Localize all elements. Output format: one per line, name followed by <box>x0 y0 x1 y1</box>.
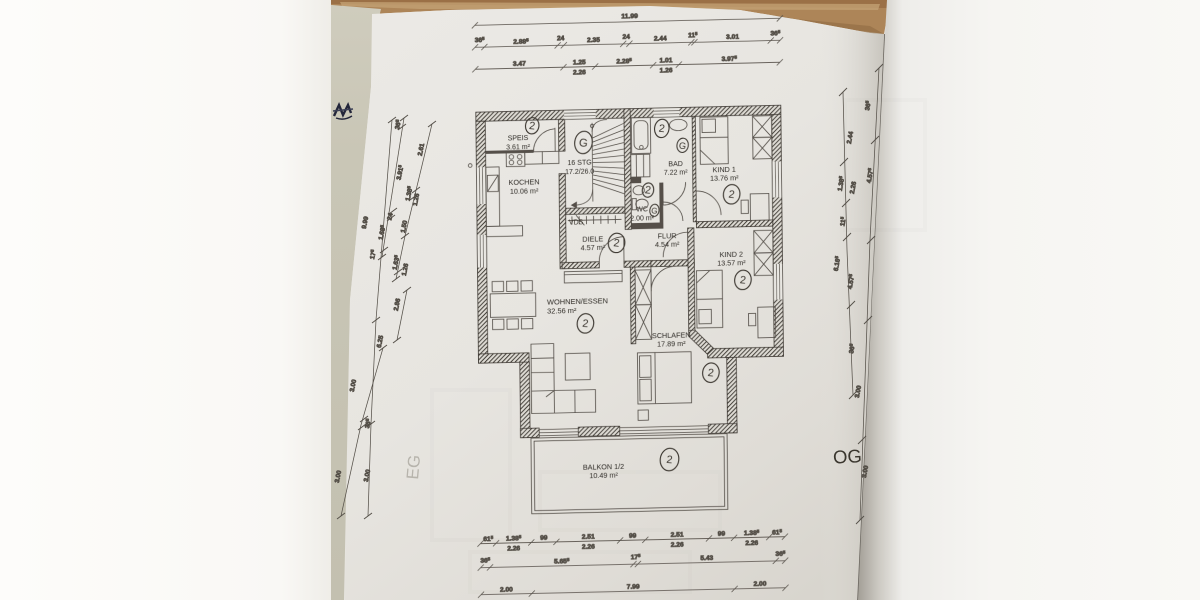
svg-text:G: G <box>578 137 588 150</box>
svg-text:EG: EG <box>403 454 424 480</box>
svg-text:13.76 m²: 13.76 m² <box>710 173 739 183</box>
svg-text:16 STG: 16 STG <box>567 160 591 168</box>
svg-text:2.00: 2.00 <box>754 581 767 588</box>
svg-text:VDS: VDS <box>569 219 584 226</box>
svg-text:1.01: 1.01 <box>660 57 673 64</box>
svg-text:3.61 m²: 3.61 m² <box>506 144 530 152</box>
svg-text:4.54 m²: 4.54 m² <box>655 240 680 250</box>
svg-text:3.01: 3.01 <box>726 34 739 41</box>
svg-text:2.26: 2.26 <box>671 542 684 549</box>
svg-text:5.43: 5.43 <box>700 555 713 562</box>
svg-text:11.99: 11.99 <box>621 13 638 20</box>
svg-text:99: 99 <box>540 535 548 542</box>
svg-text:99: 99 <box>629 533 637 540</box>
svg-text:2.44: 2.44 <box>654 35 667 42</box>
svg-text:2.00: 2.00 <box>500 586 513 593</box>
svg-text:2.26: 2.26 <box>582 544 595 551</box>
svg-text:1.25: 1.25 <box>573 59 586 66</box>
svg-text:BAD: BAD <box>668 161 682 168</box>
svg-text:G: G <box>678 141 686 152</box>
svg-text:99: 99 <box>718 530 726 537</box>
svg-text:17.2/26.0: 17.2/26.0 <box>565 168 594 176</box>
svg-text:2.35: 2.35 <box>587 37 600 44</box>
svg-text:17.89 m²: 17.89 m² <box>657 339 686 349</box>
svg-text:32.56 m²: 32.56 m² <box>547 306 577 316</box>
svg-text:4.57 m²: 4.57 m² <box>581 243 606 253</box>
svg-text:OG: OG <box>832 445 862 467</box>
svg-text:2.00 m²: 2.00 m² <box>630 215 654 223</box>
svg-text:13.57 m²: 13.57 m² <box>717 258 746 268</box>
svg-text:2.51: 2.51 <box>671 531 684 538</box>
svg-text:10.49 m²: 10.49 m² <box>589 471 618 481</box>
svg-text:SPEIS: SPEIS <box>508 135 529 142</box>
svg-text:2.26: 2.26 <box>507 545 520 552</box>
svg-text:7.22 m²: 7.22 m² <box>664 169 688 177</box>
svg-text:2.51: 2.51 <box>582 533 595 540</box>
svg-text:3.47: 3.47 <box>513 61 526 68</box>
svg-text:WOHNEN/ESSEN: WOHNEN/ESSEN <box>547 297 608 307</box>
svg-text:G: G <box>651 206 659 216</box>
svg-text:1.26: 1.26 <box>660 67 673 74</box>
svg-text:2.26: 2.26 <box>745 540 758 547</box>
svg-text:24: 24 <box>557 35 565 42</box>
svg-text:7.99: 7.99 <box>627 584 640 591</box>
svg-text:2.26: 2.26 <box>573 69 586 76</box>
svg-text:10.06 m²: 10.06 m² <box>510 186 539 196</box>
svg-text:24: 24 <box>623 34 631 41</box>
